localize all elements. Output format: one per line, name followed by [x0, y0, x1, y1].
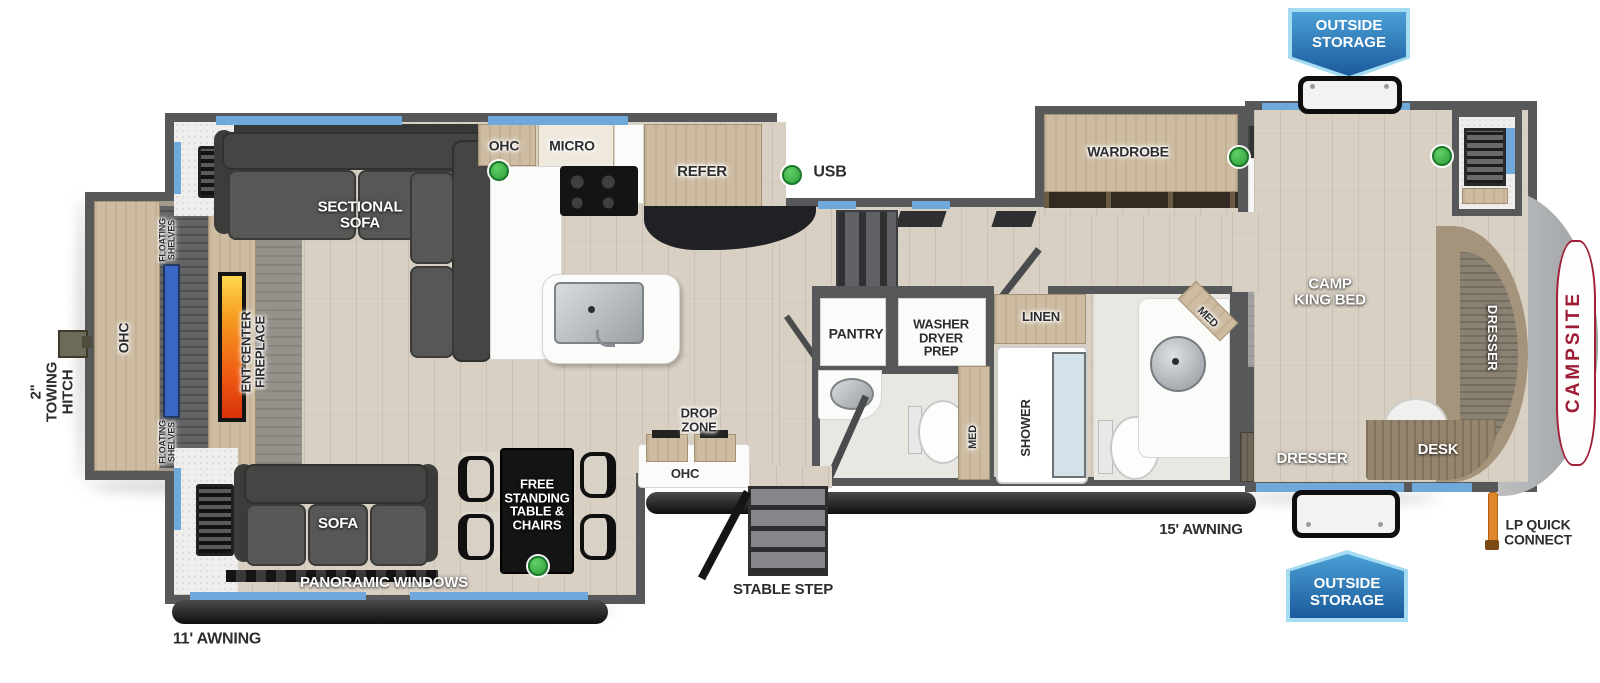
shower-label: SHOWER: [1019, 399, 1033, 456]
vent-grille: [196, 484, 234, 556]
sectional-seat: [410, 266, 454, 358]
screw: [1384, 84, 1389, 89]
awning-right-label: 15' AWNING: [1159, 522, 1243, 538]
window: [216, 116, 402, 125]
desk-label: DESK: [1418, 442, 1459, 458]
usb-dot-legend: [782, 165, 802, 185]
closet-shelf: [1462, 188, 1508, 204]
usb-dot: [1432, 146, 1452, 166]
outside-storage-badge-top: OUTSIDE STORAGE: [1288, 8, 1410, 80]
floating-shelves-label: FLOATING SHELVES: [159, 218, 178, 262]
front-dresser-label: DRESSER: [1485, 305, 1499, 371]
bed-label: CAMP KING BED: [1294, 276, 1366, 308]
window: [818, 201, 856, 209]
tv: [163, 264, 180, 418]
drop-zone-cabinet: [694, 434, 736, 462]
storage-door-plate-top: [1298, 76, 1402, 114]
pantry-label: PANTRY: [829, 327, 884, 342]
entry-threshold: [750, 466, 832, 488]
window: [174, 142, 181, 194]
shower-glass-door: [1052, 352, 1086, 478]
wall-cabinet: [895, 211, 946, 227]
window: [1412, 483, 1472, 492]
dinette-label: FREE STANDING TABLE & CHAIRS: [504, 478, 569, 533]
micro-label: MICRO: [549, 139, 595, 154]
screw: [1306, 522, 1311, 527]
towing-hitch-label: 2" TOWING HITCH: [28, 362, 75, 422]
ent-center-label: ENT CENTER FIREPLACE: [239, 311, 266, 392]
awning-left-label: 11' AWNING: [173, 632, 261, 649]
sofa-seat: [370, 504, 428, 566]
entry-steps: [748, 486, 828, 576]
dinette-chair: [458, 514, 494, 560]
usb-dot: [1229, 147, 1249, 167]
stable-step-label: STABLE STEP: [733, 582, 833, 598]
dinette-chair: [580, 514, 616, 560]
usb-dot: [528, 556, 548, 576]
drop-zone-cabinet: [646, 434, 688, 462]
floorplan: OUTSIDE STORAGE OUTSIDE STORAGE USB 2" T…: [0, 0, 1600, 683]
louver-vent: [1464, 128, 1506, 186]
window: [174, 468, 181, 530]
sectional-label: SECTIONAL SOFA: [318, 199, 403, 231]
sectional-backrest: [452, 140, 492, 362]
lp-hose: [1488, 492, 1498, 544]
sink-drain: [1172, 358, 1179, 365]
drop-zone-ohc-label: OHC: [671, 467, 699, 481]
dinette-chair: [458, 456, 494, 502]
badge-label: OUTSIDE STORAGE: [1288, 18, 1410, 52]
cooktop: [560, 166, 638, 216]
window: [912, 201, 950, 209]
screw: [1310, 84, 1315, 89]
usb-legend-label: USB: [813, 165, 846, 182]
half-bath-sink: [830, 378, 874, 410]
wardrobe-label: WARDROBE: [1087, 145, 1169, 160]
bottom-dresser-label: DRESSER: [1276, 451, 1347, 467]
refer-label: REFER: [677, 164, 727, 180]
cabinet-top: [652, 430, 680, 438]
badge-label: OUTSIDE STORAGE: [1286, 576, 1408, 610]
window: [1506, 128, 1515, 174]
dinette-chair: [580, 452, 616, 498]
panoramic-windows-label: PANORAMIC WINDOWS: [300, 575, 468, 591]
brand-label: CAMPSITE: [1564, 291, 1584, 413]
hitch-stem: [82, 336, 92, 348]
washer-dryer-label: WASHER DRYER PREP: [913, 318, 969, 359]
sofa-seat: [246, 504, 306, 566]
bath-sink: [1150, 336, 1206, 392]
window: [488, 116, 628, 125]
half-bath-med-cabinet: [958, 366, 990, 480]
wardrobe-hanging-rod: [1044, 192, 1238, 208]
lp-quick-connect-label: LP QUICK CONNECT: [1504, 517, 1572, 546]
screw: [1378, 522, 1383, 527]
bedroom-passage-floor: [1232, 212, 1262, 292]
kitchen-ohc-label: OHC: [489, 139, 520, 154]
storage-door-plate-bottom: [1292, 490, 1400, 538]
sink-drain: [588, 306, 595, 313]
sofa-backrest: [244, 464, 428, 504]
wall-cabinet: [991, 211, 1036, 227]
sofa-label: SOFA: [318, 516, 358, 532]
awning-roller-left: [172, 600, 608, 624]
med-half-bath-label: MED: [968, 425, 980, 449]
drop-zone-label: DROP ZONE: [681, 406, 718, 433]
rear-ohc-label: OHC: [117, 323, 132, 354]
outside-storage-badge-bottom: OUTSIDE STORAGE: [1286, 550, 1408, 622]
linen-label: LINEN: [1022, 310, 1060, 324]
floating-shelves-label: FLOATING SHELVES: [159, 420, 178, 464]
sectional-seat: [410, 172, 454, 264]
usb-dot: [489, 161, 509, 181]
bedroom-steps: [836, 210, 898, 298]
lp-connector: [1485, 540, 1499, 550]
sofa-seat: [308, 504, 368, 566]
